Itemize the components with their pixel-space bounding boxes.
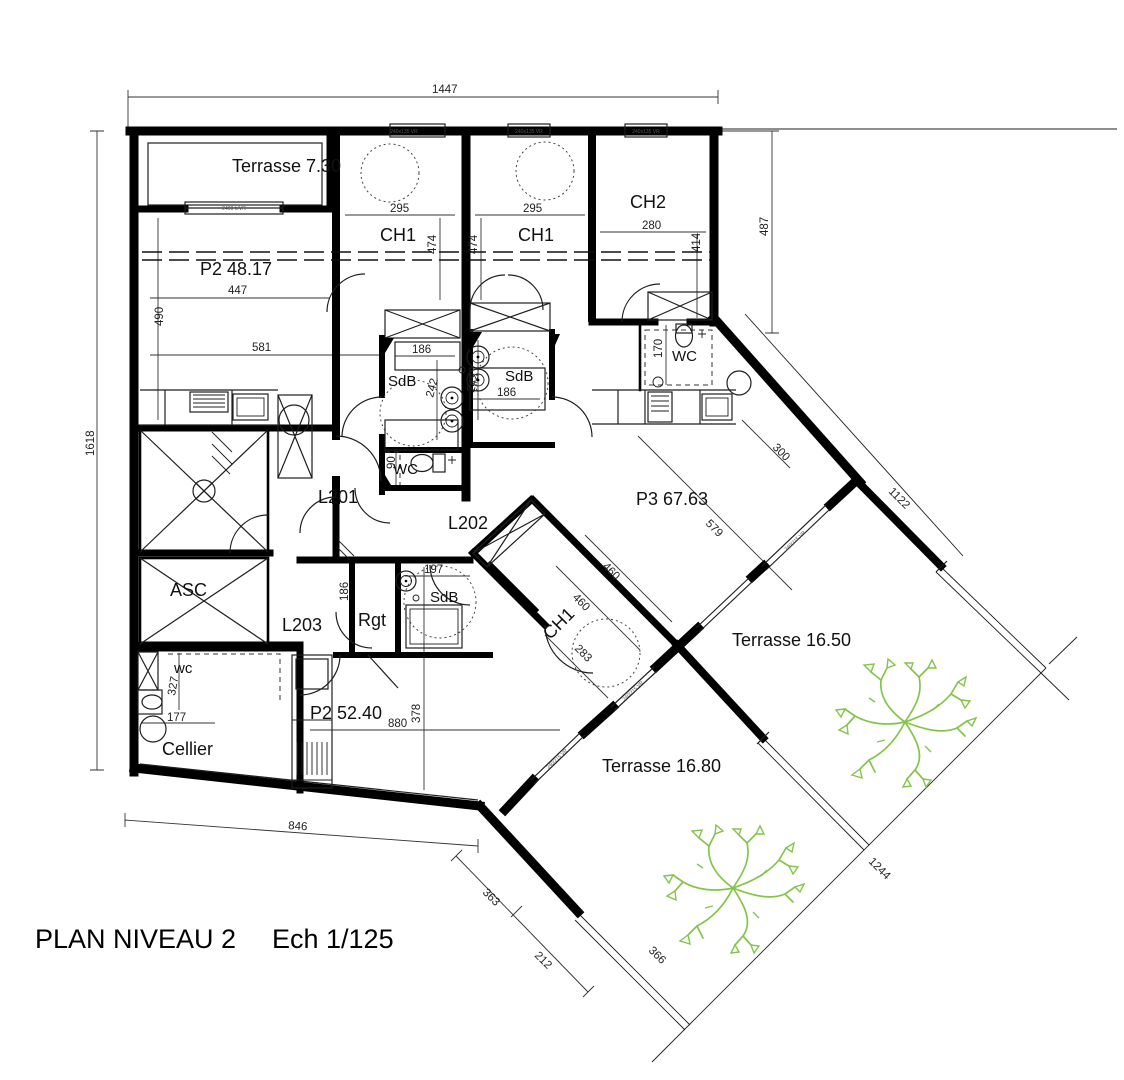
kitchen-counter-p2 [140,390,278,425]
dim-366: 366 [646,945,668,967]
dim-left: 1618 [85,430,97,456]
dim-280: 280 [642,220,661,232]
dim-447: 447 [228,285,247,297]
dotted-circles [361,142,640,687]
wc-bl-fixtures [138,652,166,742]
floor-plan-drawing: Terrasse 7.30 P2 48.17 CH1 CH1 CH2 SdB S… [0,0,1124,1080]
label-l202: L202 [448,513,488,533]
dim-bottom: 846 [288,820,308,833]
label-l203: L203 [282,615,322,635]
label-p2-4817: P2 48.17 [200,259,272,279]
tree-lower [664,825,804,953]
dim-186c: 186 [339,582,351,601]
facade-tag-a: 240/215 VR [784,530,808,553]
floor-plan-page: Terrasse 7.30 P2 48.17 CH1 CH1 CH2 SdB S… [0,0,1124,1080]
micro-window-tags: 240x135 VR 240x135 VR 240x135 VR 2400 h/… [222,129,807,770]
dimension-lines [90,90,792,997]
dim-300: 300 [770,442,792,464]
label-sdb-a: SdB [388,373,416,390]
label-p2-5240: P2 52.40 [310,703,382,723]
label-ch2: CH2 [630,192,666,212]
dim-474b: 474 [468,234,480,254]
dim-170: 170 [653,339,665,358]
duct-shaft [278,395,312,478]
dim-460b: 460 [570,592,592,614]
window-tag-3: 240x135 VR [632,129,660,135]
dim-414: 414 [691,232,703,252]
dim-474a: 474 [427,234,439,254]
window-tag-2: 240x135 VR [515,129,543,135]
label-wc-tr: WC [672,348,697,365]
plan-title: PLAN NIVEAU 2 [35,924,236,954]
label-terrasse-1680: Terrasse 16.80 [602,756,721,776]
site-boundary-lines [575,129,1117,1062]
dim-186b: 186 [497,387,516,399]
label-sdb-c: SdB [430,589,458,606]
label-ch1-c: CH1 [539,604,579,644]
dim-90: 90 [386,456,398,469]
terrace-window-tag: 2400 h/VR [222,206,246,212]
dim-1122: 1122 [886,486,912,512]
dim-295a: 295 [390,203,409,215]
label-asc: ASC [170,580,207,600]
label-sdb-b: SdB [505,368,533,385]
dim-283: 283 [572,643,594,665]
dim-490: 490 [154,307,166,326]
room-labels: Terrasse 7.30 P2 48.17 CH1 CH1 CH2 SdB S… [162,156,851,776]
dim-460a: 460 [600,561,622,583]
dim-363: 363 [480,887,502,909]
window-tag-1: 240x135 VR [390,129,418,135]
elevator-asc [140,558,268,644]
dim-242a: 242 [424,377,441,399]
dim-880: 880 [388,718,407,730]
closets [385,292,712,567]
dim-197: 197 [424,564,443,576]
dim-579: 579 [703,518,725,540]
dim-378: 378 [411,704,423,723]
kitchen-counter-p3 [592,371,751,424]
label-terrasse-730: Terrasse 7.30 [232,156,341,176]
plan-scale: Ech 1/125 [272,924,394,954]
facade-tag-c: 240/215 VR [546,748,570,771]
label-rgt: Rgt [358,610,386,630]
facade-tag-b: 240/215 VR [622,680,646,703]
label-l201: L201 [318,487,358,507]
title-block: PLAN NIVEAU 2 Ech 1/125 [35,924,394,954]
dim-581: 581 [252,342,271,354]
tree-upper [836,659,976,787]
label-terrasse-1650: Terrasse 16.50 [732,630,851,650]
dim-top: 1447 [432,84,458,96]
dim-1244: 1244 [866,856,893,883]
label-wc-bl: wc [173,660,193,677]
stairwell [140,430,268,552]
exterior-walls [130,131,947,912]
dim-295b: 295 [523,203,542,215]
dim-186a: 186 [412,344,431,356]
dim-right: 487 [759,217,771,236]
label-ch1-b: CH1 [518,225,554,245]
label-ch1-a: CH1 [380,225,416,245]
dim-177: 177 [167,712,186,724]
label-cellier: Cellier [162,739,213,759]
label-p3-6763: P3 67.63 [636,489,708,509]
